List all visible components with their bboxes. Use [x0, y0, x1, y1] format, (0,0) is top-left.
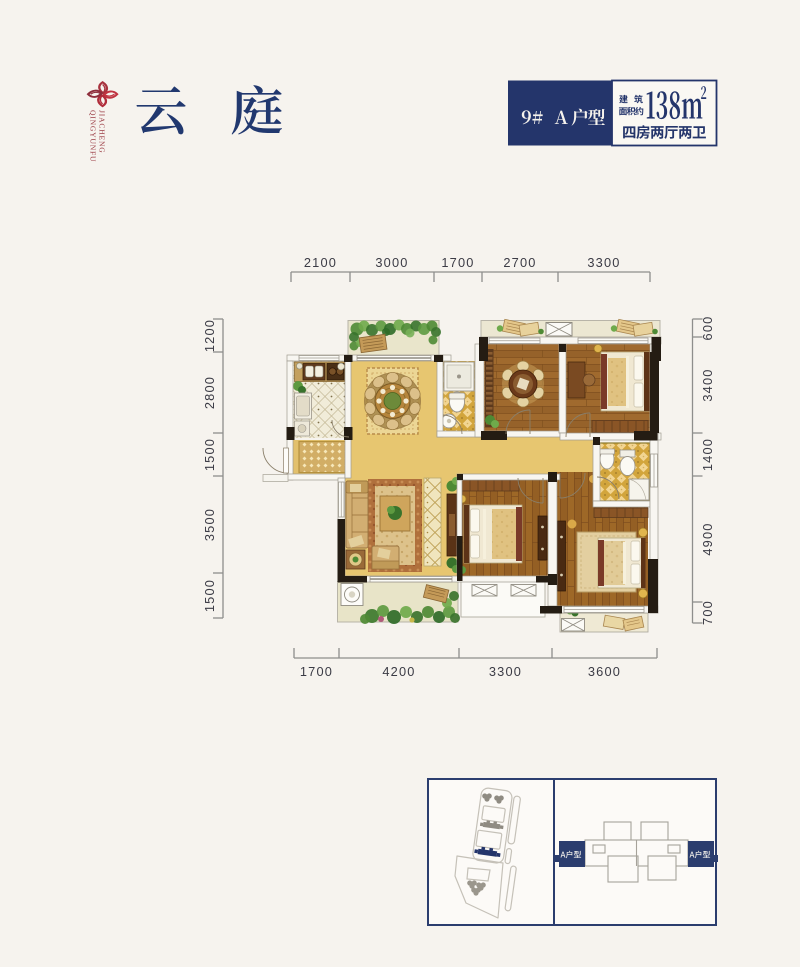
svg-text:JIACHENG: JIACHENG	[98, 110, 107, 154]
svg-text:3400: 3400	[700, 368, 715, 401]
svg-text:3000: 3000	[375, 255, 408, 270]
svg-text:1700: 1700	[300, 664, 333, 679]
svg-text:QINGYUNFU: QINGYUNFU	[89, 110, 98, 162]
svg-text:2800: 2800	[202, 376, 217, 409]
svg-text:1500: 1500	[202, 579, 217, 612]
svg-text:2700: 2700	[503, 255, 536, 270]
svg-text:3600: 3600	[588, 664, 621, 679]
svg-text:3300: 3300	[587, 255, 620, 270]
svg-text:2100: 2100	[304, 255, 337, 270]
svg-text:1500: 1500	[202, 438, 217, 471]
svg-text:1700: 1700	[441, 255, 474, 270]
svg-text:700: 700	[700, 600, 715, 625]
svg-text:3500: 3500	[202, 508, 217, 541]
svg-text:4200: 4200	[382, 664, 415, 679]
svg-text:3300: 3300	[489, 664, 522, 679]
svg-text:1400: 1400	[700, 438, 715, 471]
svg-text:4900: 4900	[700, 522, 715, 555]
svg-text:1200: 1200	[202, 319, 217, 352]
svg-text:600: 600	[700, 316, 715, 341]
